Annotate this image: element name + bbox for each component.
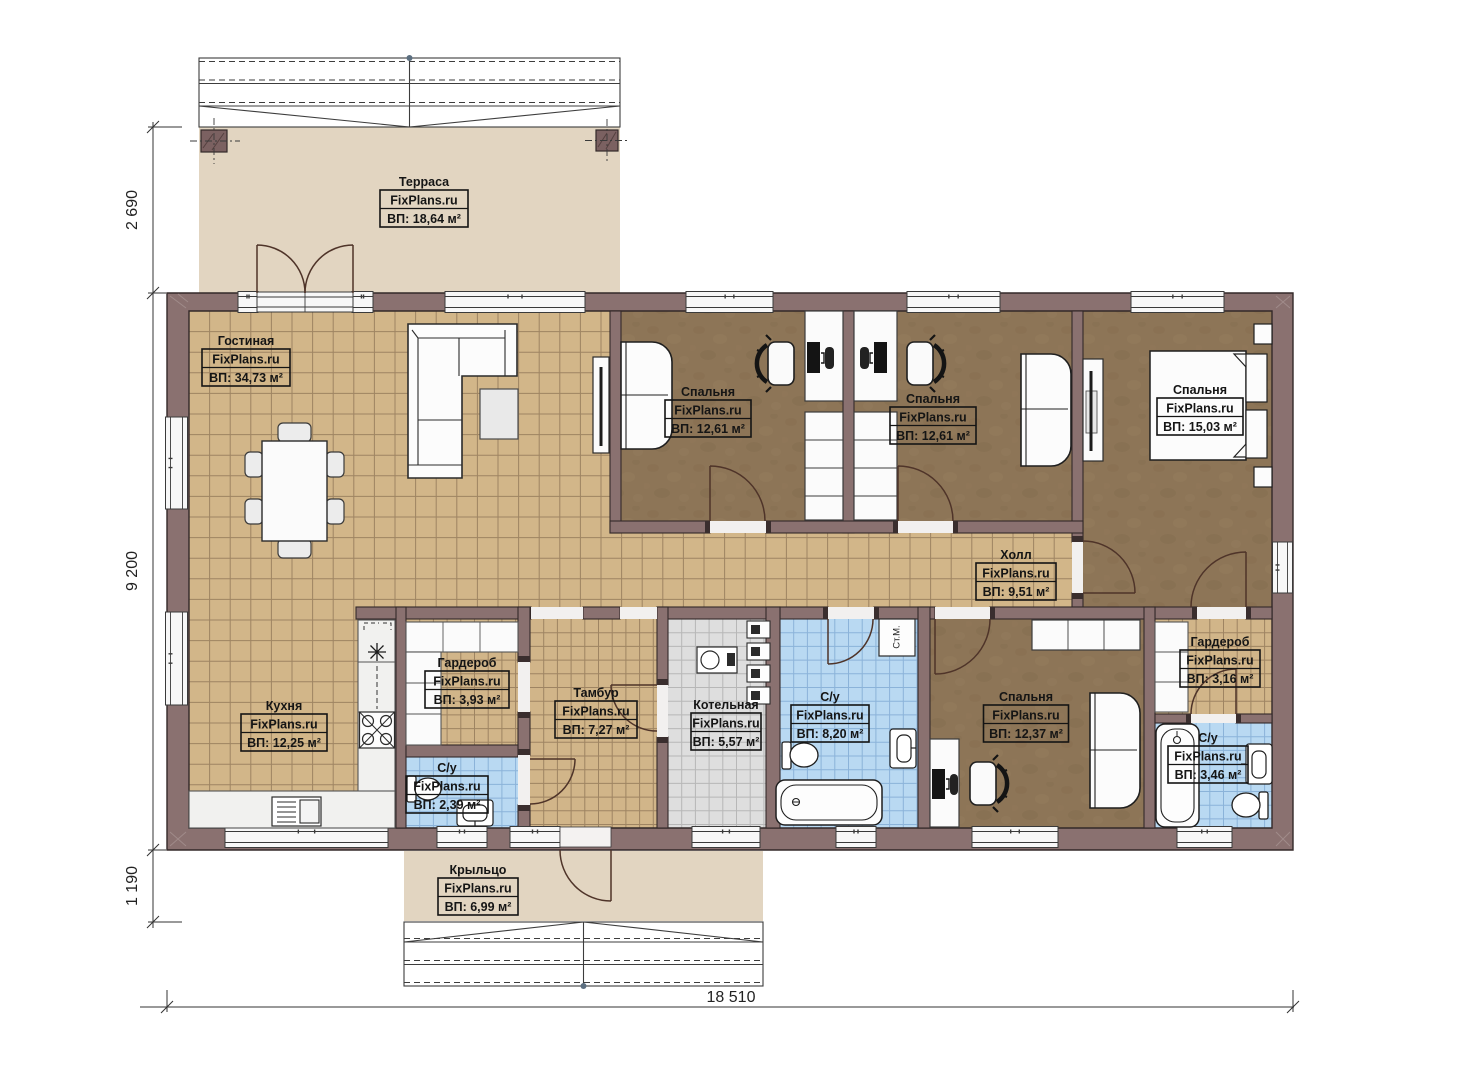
svg-text:ВП: 12,25 м²: ВП: 12,25 м² — [247, 736, 321, 750]
svg-text:FixPlans.ru: FixPlans.ru — [250, 718, 317, 732]
svg-text:Спальня: Спальня — [1173, 383, 1227, 397]
svg-text:FixPlans.ru: FixPlans.ru — [444, 882, 511, 896]
svg-text:Терраса: Терраса — [399, 175, 450, 189]
svg-text:ВП: 8,20 м²: ВП: 8,20 м² — [797, 727, 864, 741]
svg-text:FixPlans.ru: FixPlans.ru — [1186, 654, 1253, 668]
svg-text:9 200: 9 200 — [124, 551, 141, 591]
svg-text:Холл: Холл — [1000, 548, 1031, 562]
svg-text:FixPlans.ru: FixPlans.ru — [212, 353, 279, 367]
svg-text:Крыльцо: Крыльцо — [450, 863, 507, 877]
svg-text:ВП: 5,57 м²: ВП: 5,57 м² — [693, 735, 760, 749]
svg-text:Гардероб: Гардероб — [1190, 635, 1249, 649]
svg-text:С/у: С/у — [820, 690, 840, 704]
svg-text:С/у: С/у — [1198, 731, 1218, 745]
svg-text:FixPlans.ru: FixPlans.ru — [1166, 402, 1233, 416]
svg-text:Гостиная: Гостиная — [218, 334, 275, 348]
svg-text:ВП: 12,61 м²: ВП: 12,61 м² — [671, 422, 745, 436]
svg-text:FixPlans.ru: FixPlans.ru — [982, 567, 1049, 581]
svg-text:ВП: 12,61 м²: ВП: 12,61 м² — [896, 429, 970, 443]
svg-text:С/у: С/у — [437, 761, 457, 775]
svg-text:2 690: 2 690 — [124, 190, 141, 230]
svg-text:ВП: 3,93 м²: ВП: 3,93 м² — [434, 693, 501, 707]
svg-text:Гардероб: Гардероб — [437, 656, 496, 670]
svg-text:Спальня: Спальня — [681, 385, 735, 399]
svg-text:Тамбур: Тамбур — [573, 686, 619, 700]
svg-text:ВП: 34,73 м²: ВП: 34,73 м² — [209, 371, 283, 385]
svg-text:ВП: 3,46 м²: ВП: 3,46 м² — [1175, 768, 1242, 782]
svg-text:FixPlans.ru: FixPlans.ru — [390, 194, 457, 208]
svg-text:Котельная: Котельная — [693, 698, 758, 712]
svg-text:FixPlans.ru: FixPlans.ru — [992, 709, 1059, 723]
svg-text:18 510: 18 510 — [707, 989, 756, 1006]
svg-text:ВП: 18,64 м²: ВП: 18,64 м² — [387, 212, 461, 226]
svg-text:ВП: 2,39 м²: ВП: 2,39 м² — [414, 798, 481, 812]
svg-text:ВП: 9,51 м²: ВП: 9,51 м² — [983, 585, 1050, 599]
svg-text:ВП: 6,99 м²: ВП: 6,99 м² — [445, 900, 512, 914]
svg-text:ВП: 3,16 м²: ВП: 3,16 м² — [1187, 672, 1254, 686]
svg-text:ВП: 7,27 м²: ВП: 7,27 м² — [563, 723, 630, 737]
svg-text:FixPlans.ru: FixPlans.ru — [562, 705, 629, 719]
svg-text:Кухня: Кухня — [266, 699, 303, 713]
svg-text:FixPlans.ru: FixPlans.ru — [413, 780, 480, 794]
svg-text:ВП: 12,37 м²: ВП: 12,37 м² — [989, 727, 1063, 741]
svg-text:FixPlans.ru: FixPlans.ru — [796, 709, 863, 723]
svg-text:Спальня: Спальня — [999, 690, 1053, 704]
svg-text:Спальня: Спальня — [906, 392, 960, 406]
svg-text:FixPlans.ru: FixPlans.ru — [899, 411, 966, 425]
svg-text:ВП: 15,03 м²: ВП: 15,03 м² — [1163, 420, 1237, 434]
svg-text:FixPlans.ru: FixPlans.ru — [692, 717, 759, 731]
svg-text:FixPlans.ru: FixPlans.ru — [1174, 750, 1241, 764]
svg-text:FixPlans.ru: FixPlans.ru — [674, 404, 741, 418]
svg-text:FixPlans.ru: FixPlans.ru — [433, 675, 500, 689]
svg-text:Ст.М.: Ст.М. — [892, 625, 903, 648]
svg-text:1 190: 1 190 — [124, 866, 141, 906]
